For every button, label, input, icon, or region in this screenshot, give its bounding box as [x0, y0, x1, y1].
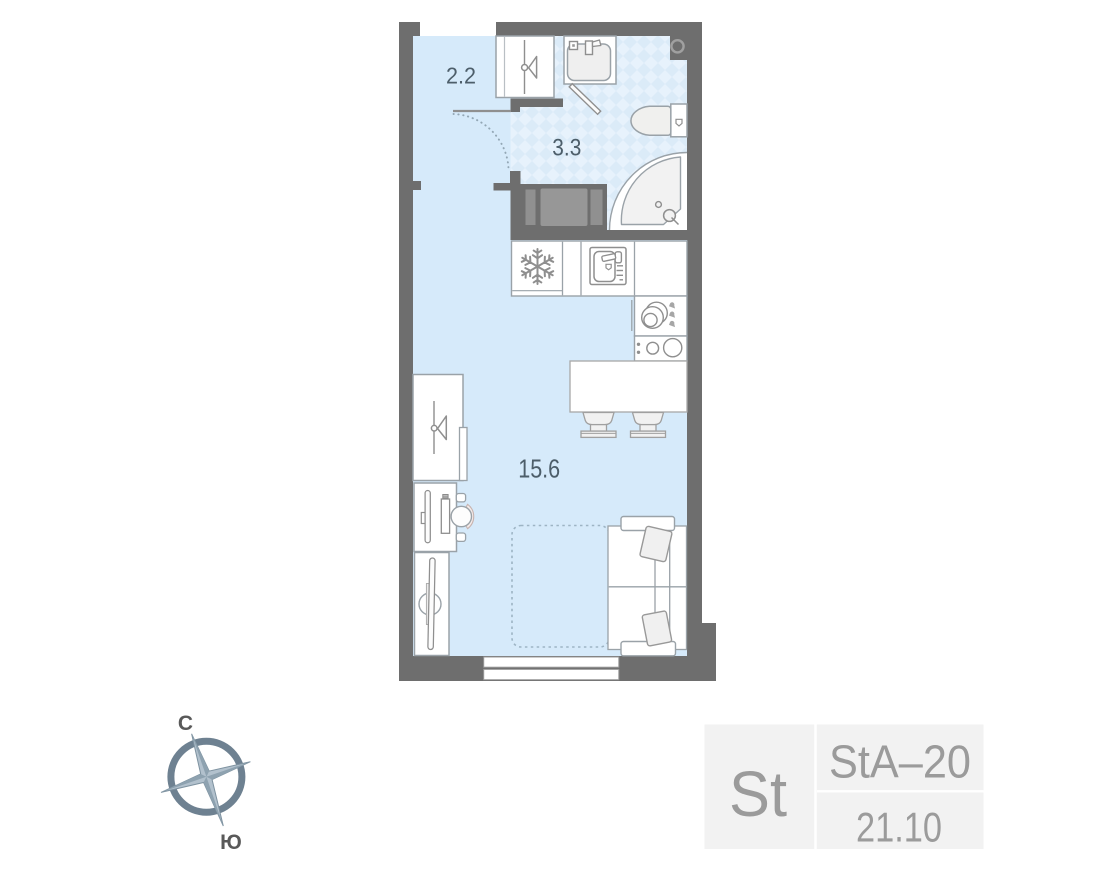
- svg-text:С: С: [178, 712, 193, 735]
- svg-text:3.3: 3.3: [552, 135, 581, 162]
- svg-text:15.6: 15.6: [518, 455, 560, 483]
- svg-text:Ю: Ю: [220, 831, 242, 854]
- svg-text:StA–20: StA–20: [829, 736, 971, 788]
- svg-text:2.2: 2.2: [446, 62, 476, 88]
- svg-text:St: St: [729, 758, 787, 830]
- svg-text:21.10: 21.10: [856, 804, 942, 851]
